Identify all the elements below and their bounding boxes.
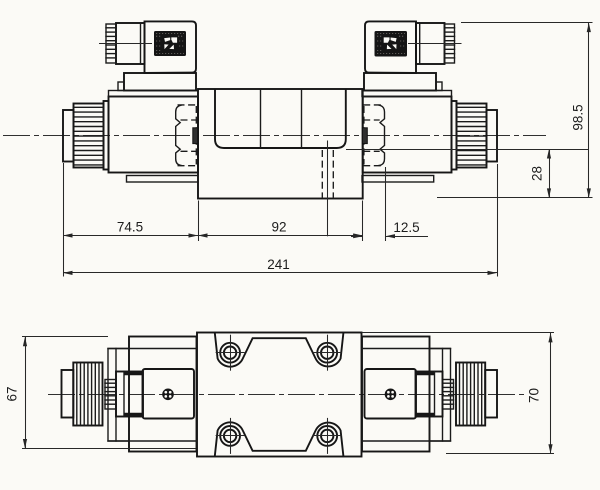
svg-text:74.5: 74.5	[117, 220, 143, 235]
svg-text:67: 67	[5, 386, 20, 401]
svg-text:70: 70	[527, 388, 542, 403]
svg-text:92: 92	[271, 220, 286, 235]
svg-text:12.5: 12.5	[393, 220, 419, 235]
svg-text:98.5: 98.5	[571, 104, 586, 130]
svg-text:28: 28	[530, 166, 545, 181]
svg-text:241: 241	[267, 257, 290, 272]
